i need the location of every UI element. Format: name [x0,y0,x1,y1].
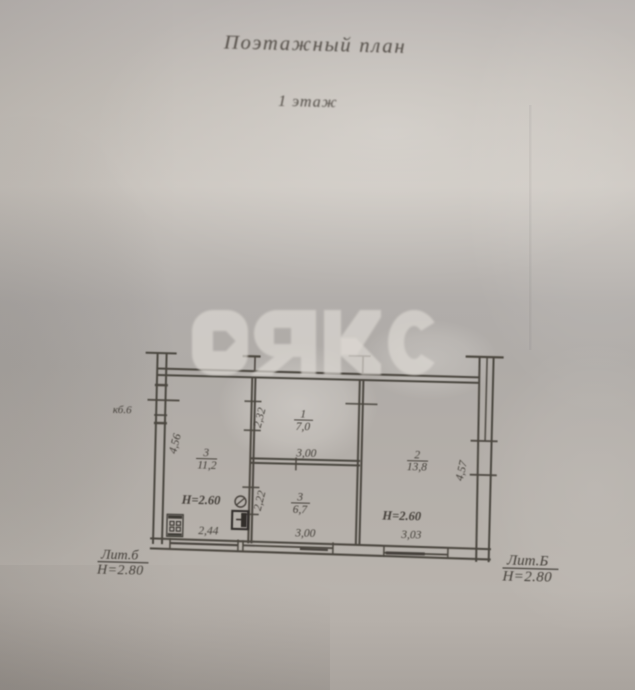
svg-text:3: 3 [296,491,303,503]
svg-text:кб.6: кб.6 [113,404,132,416]
svg-text:7,0: 7,0 [296,421,311,433]
svg-text:13,8: 13,8 [407,461,428,473]
svg-text:Лит.Б: Лит.Б [506,553,549,570]
svg-text:2: 2 [414,449,420,461]
svg-text:3: 3 [202,447,209,459]
svg-text:Н=2.60: Н=2.60 [181,493,222,508]
svg-text:1: 1 [300,409,306,421]
svg-text:1 этаж: 1 этаж [278,93,338,111]
svg-text:3,03: 3,03 [400,529,422,542]
svg-text:6,7: 6,7 [293,504,309,516]
svg-text:2,44: 2,44 [198,525,219,537]
svg-text:11,2: 11,2 [197,460,217,472]
svg-text:Поэтажный план: Поэтажный план [223,32,407,58]
svg-text:Н=2.80: Н=2.80 [96,563,144,579]
svg-text:3,00: 3,00 [294,527,316,540]
svg-text:Н=2.80: Н=2.80 [501,568,552,585]
svg-text:3,00: 3,00 [295,447,317,460]
svg-text:Н=2.60: Н=2.60 [381,509,422,524]
